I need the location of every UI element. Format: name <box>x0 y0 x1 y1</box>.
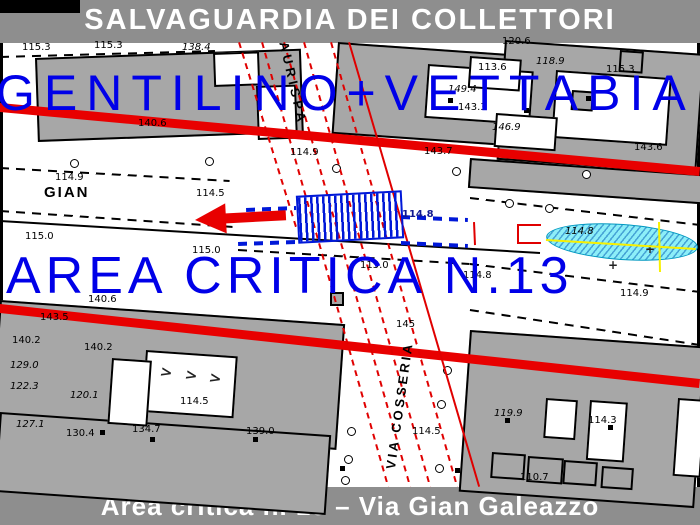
elevation-label: 120.6 <box>502 36 531 47</box>
arrow-head-icon <box>194 203 227 235</box>
elevation-label: 129.0 <box>10 360 39 371</box>
elevation-label: 122.3 <box>10 381 39 392</box>
courtyard <box>673 398 700 478</box>
street-name-label: GIAN <box>44 184 90 201</box>
elevation-label: 139.0 <box>246 426 275 437</box>
building-dot <box>455 468 460 473</box>
elevation-label: 143.7 <box>424 146 453 157</box>
courtyard <box>543 398 578 440</box>
map-screenshot: SALVAGUARDIA DEI COLLETTORI GENTILINO+VE… <box>0 0 700 525</box>
elevation-label: 114.9 <box>620 288 649 299</box>
tree-icon <box>505 199 514 208</box>
tree-icon <box>70 159 79 168</box>
tree-icon <box>344 455 353 464</box>
elevation-label: 120.1 <box>70 390 99 401</box>
building-dot <box>340 466 345 471</box>
arrow-shaft <box>224 210 286 223</box>
page-title: SALVAGUARDIA DEI COLLETTORI <box>84 4 615 36</box>
collector-hatched-rectangle <box>296 190 404 243</box>
elevation-label: 146.9 <box>492 122 521 133</box>
elevation-label: 145 <box>396 319 415 330</box>
elevation-label: 114.5 <box>196 188 225 199</box>
building-annex <box>600 466 633 490</box>
elevation-label: 115.3 <box>22 42 51 53</box>
corner-black-box <box>0 0 80 13</box>
elevation-label: 114.9 <box>290 147 319 158</box>
red-bracket-marker <box>517 224 541 244</box>
elevation-label: 140.2 <box>12 335 41 346</box>
elevation-label: 114.5 <box>180 396 209 407</box>
tree-icon <box>435 464 444 473</box>
elevation-label: 127.1 <box>16 419 45 430</box>
tree-icon <box>347 427 356 436</box>
tree-icon <box>341 476 350 485</box>
tree-icon <box>452 167 461 176</box>
building-annex <box>562 460 598 486</box>
building-dot <box>253 437 258 442</box>
elevation-label: 134.7 <box>132 424 161 435</box>
critical-area-overlay: AREA CRITICA N.13 <box>6 246 574 306</box>
elevation-label: 130.4 <box>66 428 95 439</box>
tree-icon <box>582 170 591 179</box>
tree-icon <box>545 204 554 213</box>
elevation-label: 143.6 <box>634 142 663 153</box>
building-dot <box>150 437 155 442</box>
tree-icon <box>205 157 214 166</box>
elevation-label: 114.9 <box>55 172 84 183</box>
elevation-label: 115.0 <box>25 231 54 242</box>
elevation-label: 143.5 <box>40 312 69 323</box>
map-mark: + <box>608 258 618 272</box>
building-dot <box>100 430 105 435</box>
courtyard <box>107 358 152 427</box>
elevation-label: 110.7 <box>520 472 549 483</box>
collectors-name-overlay: GENTILINO+VETTABIA <box>0 64 695 122</box>
elevation-label: 114.8 <box>402 209 434 220</box>
elevation-label: 114.3 <box>588 415 617 426</box>
elevation-label: 119.9 <box>494 408 523 419</box>
elevation-label: 114.8 <box>565 226 594 237</box>
elevation-label: 140.2 <box>84 342 113 353</box>
title-bar: SALVAGUARDIA DEI COLLETTORI <box>0 0 700 43</box>
elevation-label: 138.4 <box>182 42 211 53</box>
flow-direction-arrow-icon <box>194 200 287 235</box>
elevation-label: 115.3 <box>94 40 123 51</box>
elevation-label: 114.5 <box>412 426 441 437</box>
tree-icon <box>437 400 446 409</box>
courtyard <box>586 400 628 463</box>
